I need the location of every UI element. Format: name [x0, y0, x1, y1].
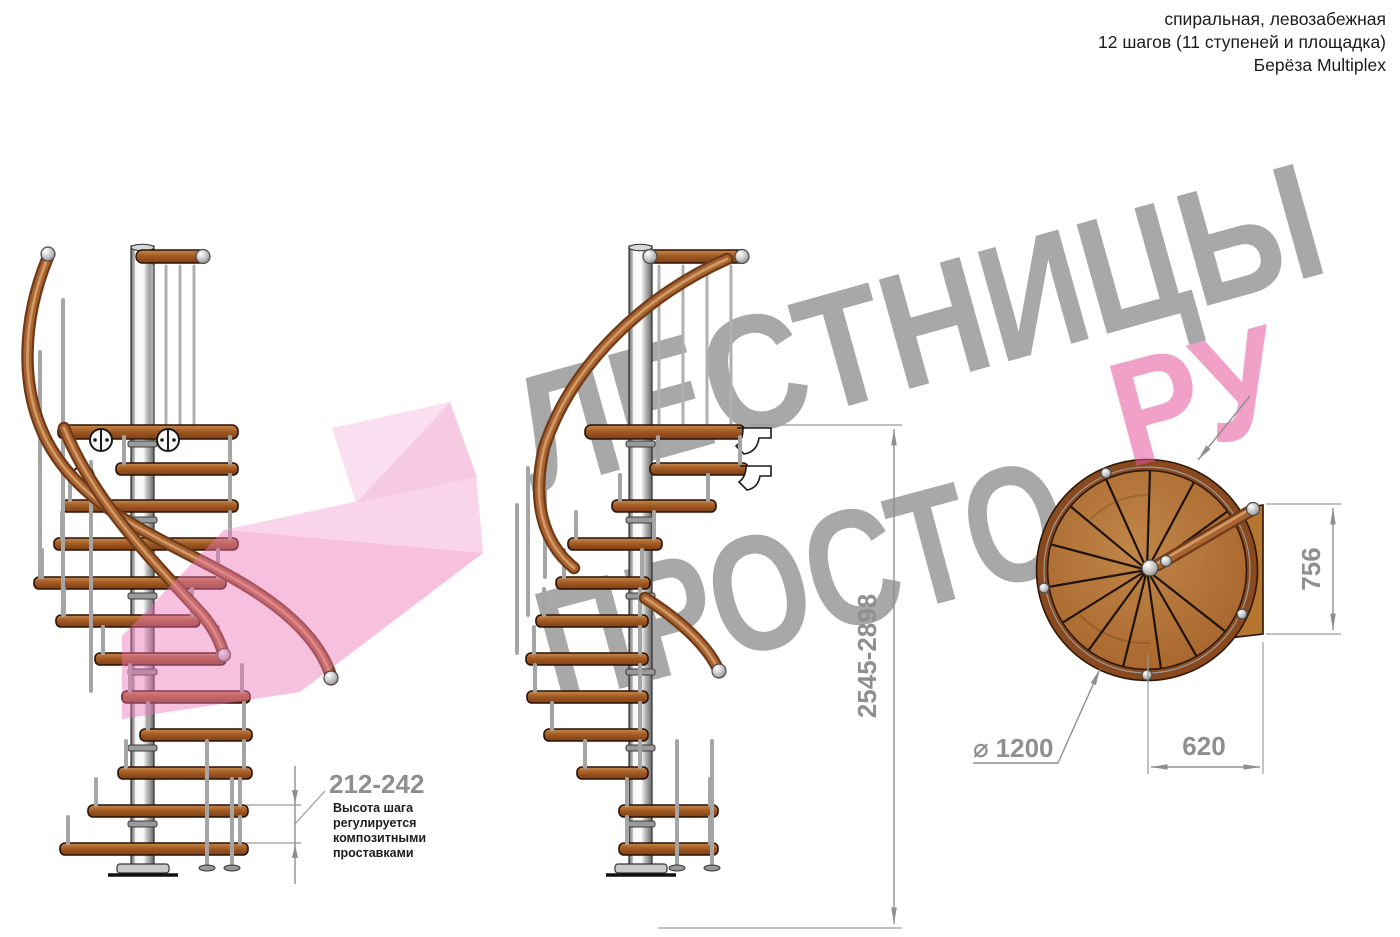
total-height-value: 2545-2898 — [852, 594, 882, 718]
watermark-logo-pink — [122, 402, 483, 719]
diameter-symbol: ⌀ — [973, 733, 989, 763]
title-block: спиральная, левозабежная 12 шагов (11 ст… — [1098, 8, 1386, 77]
step-height-note-4: проставками — [333, 846, 414, 860]
dimension-diameter: ⌀1200 — [973, 669, 1100, 763]
step-height-value: 212-242 — [329, 769, 424, 799]
rim-stud — [1101, 468, 1111, 478]
pole-base-flange — [117, 864, 169, 873]
handrail-end-cap — [196, 250, 210, 264]
dimension-landing-depth: 756 — [1266, 504, 1341, 634]
technical-drawing: ЛЕСТНИЦЫ ПРОСТО — [0, 0, 1400, 937]
pole-hub — [1142, 560, 1158, 576]
rim-stud — [1039, 583, 1049, 593]
title-line-material: Берёза Multiplex — [1098, 54, 1386, 77]
landing-width-value: 620 — [1182, 731, 1225, 761]
landing-depth-value: 756 — [1296, 547, 1326, 590]
pole-base-flange — [615, 864, 667, 873]
rim-stud — [1237, 609, 1247, 619]
drawing-canvas: ЛЕСТНИЦЫ ПРОСТО — [0, 0, 1400, 937]
title-line-type: спиральная, левозабежная — [1098, 8, 1386, 31]
dimension-step-height: 212-242 Высота шага регулируется компози… — [246, 766, 426, 884]
step-height-note-3: композитными — [333, 831, 426, 845]
step-height-note-1: Высота шага — [333, 801, 414, 815]
rim-stud — [1142, 670, 1152, 680]
step-height-note-2: регулируется — [333, 816, 416, 830]
title-line-steps: 12 шагов (11 ступеней и площадка) — [1098, 31, 1386, 54]
diameter-value: ⌀1200 — [973, 733, 1054, 763]
